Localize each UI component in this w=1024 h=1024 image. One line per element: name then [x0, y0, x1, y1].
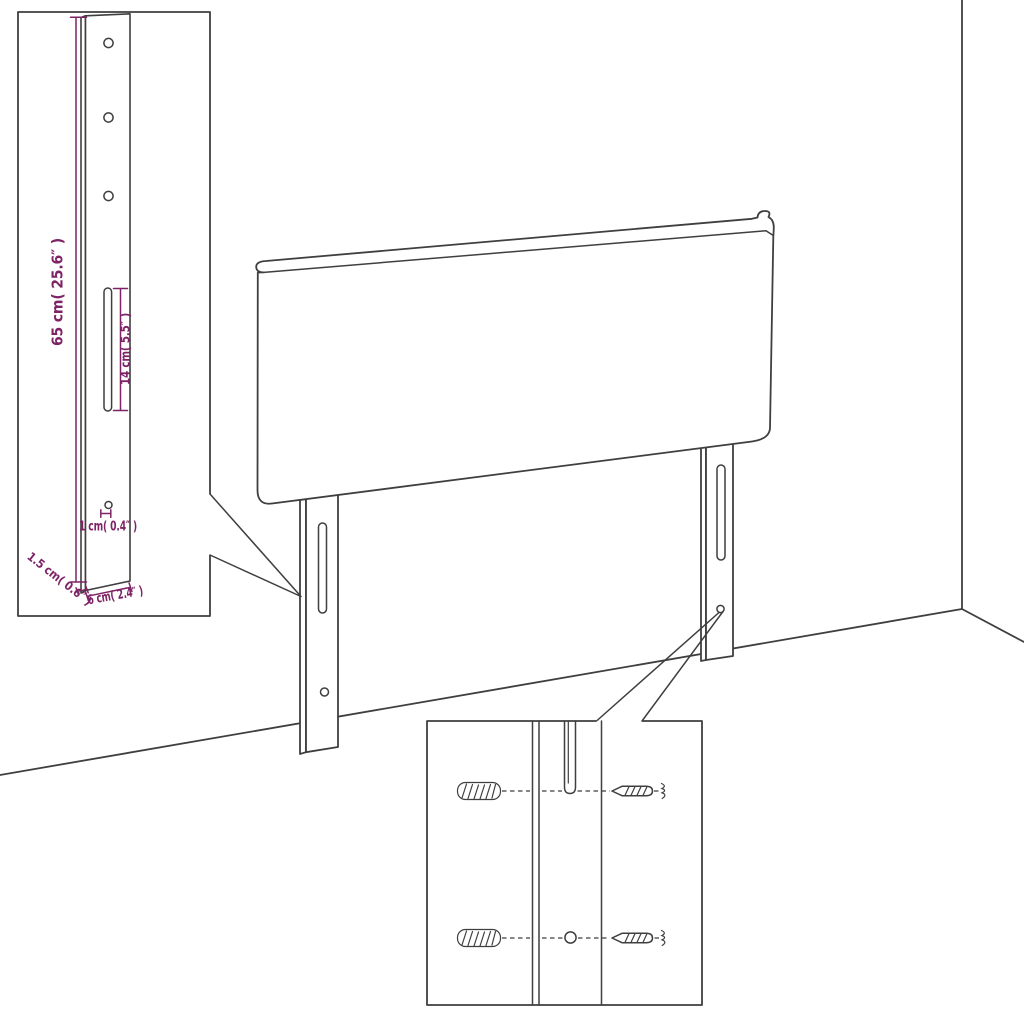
assembly-diagram: 65 cm( 25.6″ ) 14 cm( 5.5″ ) 1 cm( 0.4″ …	[0, 0, 1024, 1024]
headboard-panel	[256, 211, 774, 504]
left-leg	[300, 495, 338, 755]
dim-slot-length-label: 14 cm( 5.5″ )	[118, 313, 133, 385]
dim-hole-diameter-label: 1 cm( 0.4″ )	[79, 520, 137, 535]
bracket-detail-inset: 65 cm( 25.6″ ) 14 cm( 5.5″ ) 1 cm( 0.4″ …	[18, 12, 210, 616]
dim-height-label: 65 cm( 25.6″ )	[49, 238, 67, 346]
diagram-canvas: 65 cm( 25.6″ ) 14 cm( 5.5″ ) 1 cm( 0.4″ …	[0, 0, 1024, 1024]
headboard-panel-outline	[256, 211, 774, 504]
right-leg-front-face	[706, 442, 733, 660]
callout-lines-bracket-detail	[210, 494, 301, 597]
left-leg-front-face	[306, 495, 338, 753]
mounting-detail-inset	[427, 721, 702, 1005]
right-leg	[701, 442, 733, 661]
bracket-front-face	[86, 14, 131, 591]
